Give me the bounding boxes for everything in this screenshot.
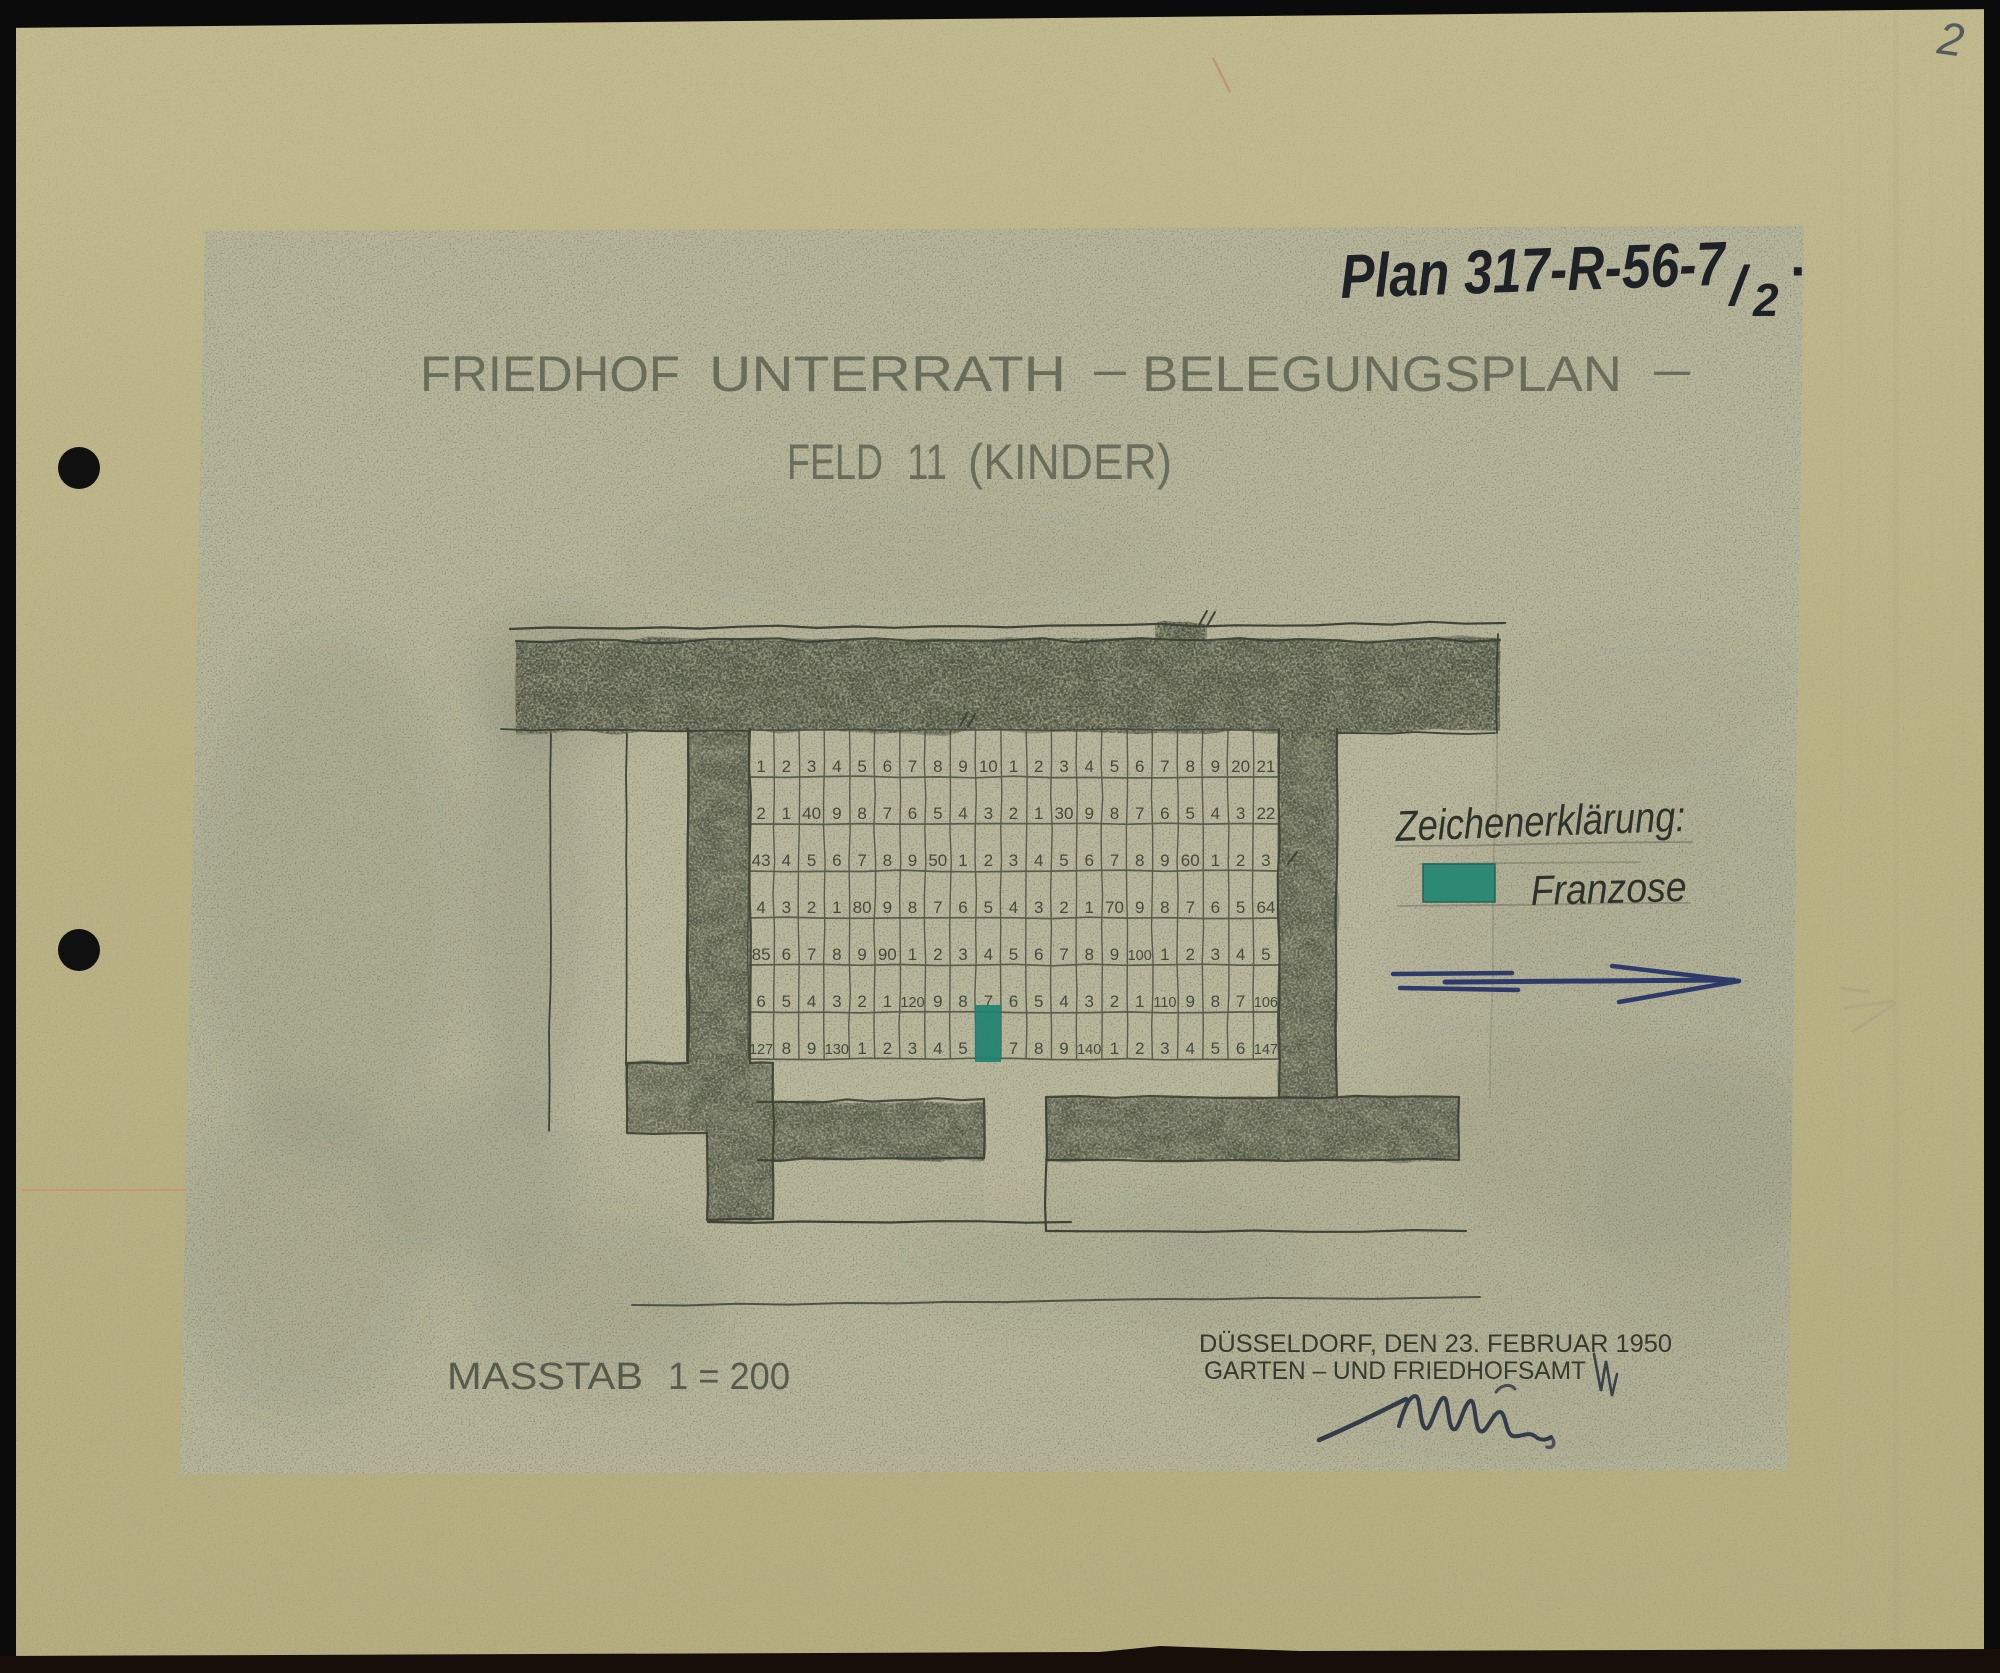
svg-text:1: 1 xyxy=(908,945,917,964)
svg-text:60: 60 xyxy=(1181,851,1200,870)
svg-text:85: 85 xyxy=(752,945,771,964)
svg-text:6: 6 xyxy=(1211,898,1220,917)
svg-text:5: 5 xyxy=(807,851,816,870)
svg-text:7: 7 xyxy=(1185,898,1194,917)
svg-text:6: 6 xyxy=(883,757,892,776)
svg-text:8: 8 xyxy=(1034,1039,1043,1058)
svg-text:4: 4 xyxy=(984,945,993,964)
svg-text:7: 7 xyxy=(908,757,917,776)
svg-text:5: 5 xyxy=(984,898,993,917)
svg-text:3: 3 xyxy=(908,1039,917,1058)
svg-text:FRIEDHOF: FRIEDHOF xyxy=(420,346,680,402)
svg-text:8: 8 xyxy=(782,1039,791,1058)
svg-text:–: – xyxy=(1654,341,1690,397)
svg-text:6: 6 xyxy=(908,804,917,823)
svg-text:130: 130 xyxy=(825,1042,849,1058)
svg-text:22: 22 xyxy=(1256,804,1275,823)
svg-text:8: 8 xyxy=(1211,992,1220,1011)
svg-text:7: 7 xyxy=(883,804,892,823)
svg-text:DÜSSELDORF, DEN 23. FEBRUAR 1: DÜSSELDORF, DEN 23. FEBRUAR 1950 xyxy=(1199,1330,1672,1358)
svg-text:1: 1 xyxy=(1110,1039,1119,1058)
svg-text:2: 2 xyxy=(984,851,993,870)
svg-text:MASSTAB: MASSTAB xyxy=(447,1356,643,1398)
svg-text:7: 7 xyxy=(857,851,866,870)
svg-text:5: 5 xyxy=(1110,757,1119,776)
svg-text:140: 140 xyxy=(1077,1042,1101,1058)
svg-text:4: 4 xyxy=(1009,898,1018,917)
svg-text:120: 120 xyxy=(900,995,924,1011)
svg-text:3: 3 xyxy=(1059,757,1068,776)
svg-text:9: 9 xyxy=(908,851,917,870)
svg-text:5: 5 xyxy=(958,1039,967,1058)
svg-text:70: 70 xyxy=(1105,898,1124,917)
svg-text:BELEGUNGSPLAN: BELEGUNGSPLAN xyxy=(1142,346,1622,402)
svg-text:20: 20 xyxy=(1231,757,1250,776)
svg-text:3: 3 xyxy=(832,992,841,1011)
svg-text:2: 2 xyxy=(756,804,765,823)
svg-text:6: 6 xyxy=(832,851,841,870)
svg-text:11: 11 xyxy=(907,434,947,490)
svg-text:3: 3 xyxy=(1034,898,1043,917)
svg-text:1: 1 xyxy=(883,992,892,1011)
svg-text:7: 7 xyxy=(1009,1039,1018,1058)
svg-text:8: 8 xyxy=(933,757,942,776)
svg-text:4: 4 xyxy=(958,804,967,823)
svg-text:2: 2 xyxy=(782,757,791,776)
svg-text:4: 4 xyxy=(807,992,816,1011)
svg-text:6: 6 xyxy=(1009,992,1018,1011)
svg-text:8: 8 xyxy=(908,898,917,917)
svg-text:7: 7 xyxy=(807,945,816,964)
svg-text:7: 7 xyxy=(933,898,942,917)
svg-text:2: 2 xyxy=(1185,945,1194,964)
svg-text:7: 7 xyxy=(1059,945,1068,964)
svg-text:2: 2 xyxy=(1009,804,1018,823)
svg-text:1: 1 xyxy=(1135,992,1144,1011)
svg-text:3: 3 xyxy=(1009,851,1018,870)
svg-text:5: 5 xyxy=(1185,804,1194,823)
svg-text:6: 6 xyxy=(1034,945,1043,964)
svg-text:9: 9 xyxy=(832,804,841,823)
svg-text:80: 80 xyxy=(853,898,872,917)
svg-text:1: 1 xyxy=(958,851,967,870)
svg-text:9: 9 xyxy=(1211,757,1220,776)
svg-text:9: 9 xyxy=(1059,1039,1068,1058)
svg-text:6: 6 xyxy=(1084,851,1093,870)
svg-text:8: 8 xyxy=(1160,898,1169,917)
svg-text:1: 1 xyxy=(1160,945,1169,964)
svg-text:·: · xyxy=(1790,239,1809,302)
svg-text:2: 2 xyxy=(1059,898,1068,917)
svg-text:9: 9 xyxy=(807,1039,816,1058)
svg-text:8: 8 xyxy=(857,804,866,823)
svg-text:7: 7 xyxy=(1160,757,1169,776)
svg-text:8: 8 xyxy=(1185,757,1194,776)
svg-text:1: 1 xyxy=(832,898,841,917)
svg-text:127: 127 xyxy=(749,1042,773,1058)
svg-text:FELD: FELD xyxy=(787,434,883,490)
svg-text:8: 8 xyxy=(1084,945,1093,964)
svg-text:1 = 200: 1 = 200 xyxy=(668,1356,790,1398)
svg-text:2: 2 xyxy=(933,945,942,964)
svg-text:4: 4 xyxy=(1211,804,1220,823)
svg-text:2: 2 xyxy=(1752,274,1779,326)
svg-text:8: 8 xyxy=(958,992,967,1011)
svg-text:UNTERRATH: UNTERRATH xyxy=(709,346,1066,402)
svg-text:Franzose: Franzose xyxy=(1530,863,1687,914)
svg-text:90: 90 xyxy=(878,945,897,964)
svg-text:8: 8 xyxy=(1110,804,1119,823)
svg-text:8: 8 xyxy=(1135,851,1144,870)
svg-text:9: 9 xyxy=(883,898,892,917)
svg-text:30: 30 xyxy=(1055,804,1074,823)
svg-text:3: 3 xyxy=(984,804,993,823)
svg-text:147: 147 xyxy=(1254,1042,1278,1058)
svg-text:6: 6 xyxy=(1236,1039,1245,1058)
svg-text:5: 5 xyxy=(1034,992,1043,1011)
svg-text:9: 9 xyxy=(1185,992,1194,1011)
svg-text:1: 1 xyxy=(1084,898,1093,917)
svg-text:10: 10 xyxy=(979,757,998,776)
svg-text:1: 1 xyxy=(1034,804,1043,823)
svg-text:3: 3 xyxy=(1084,992,1093,1011)
svg-text:2: 2 xyxy=(1236,851,1245,870)
svg-text:Zeichenerklärung:: Zeichenerklärung: xyxy=(1394,793,1686,851)
svg-text:9: 9 xyxy=(958,757,967,776)
svg-text:3: 3 xyxy=(1236,804,1245,823)
svg-text:(KINDER): (KINDER) xyxy=(968,434,1172,490)
svg-text:50: 50 xyxy=(928,851,947,870)
svg-text:9: 9 xyxy=(933,992,942,1011)
svg-text:5: 5 xyxy=(857,757,866,776)
svg-text:4: 4 xyxy=(1236,945,1245,964)
svg-text:6: 6 xyxy=(756,992,765,1011)
svg-text:5: 5 xyxy=(1236,898,1245,917)
svg-text:9: 9 xyxy=(1135,898,1144,917)
svg-text:3: 3 xyxy=(958,945,967,964)
svg-text:106: 106 xyxy=(1254,995,1278,1011)
svg-text:4: 4 xyxy=(1059,992,1068,1011)
svg-text:2: 2 xyxy=(883,1039,892,1058)
svg-text:5: 5 xyxy=(1009,945,1018,964)
svg-text:2: 2 xyxy=(1135,1039,1144,1058)
svg-text:5: 5 xyxy=(1261,945,1270,964)
svg-text:110: 110 xyxy=(1153,995,1176,1011)
svg-text:3: 3 xyxy=(1160,1039,1169,1058)
svg-text:4: 4 xyxy=(782,851,791,870)
svg-text:1: 1 xyxy=(782,804,791,823)
svg-text:9: 9 xyxy=(1110,945,1119,964)
svg-text:4: 4 xyxy=(1185,1039,1194,1058)
svg-text:9: 9 xyxy=(1084,804,1093,823)
svg-text:4: 4 xyxy=(832,757,841,776)
svg-text:5: 5 xyxy=(782,992,791,1011)
svg-text:1: 1 xyxy=(857,1039,866,1058)
svg-text:21: 21 xyxy=(1256,757,1275,776)
svg-text:3: 3 xyxy=(807,757,816,776)
svg-text:64: 64 xyxy=(1256,898,1275,917)
svg-text:40: 40 xyxy=(802,804,821,823)
svg-text:4: 4 xyxy=(1084,757,1093,776)
svg-text:4: 4 xyxy=(756,898,765,917)
svg-text:6: 6 xyxy=(782,945,791,964)
svg-text:6: 6 xyxy=(1135,757,1144,776)
svg-text:6: 6 xyxy=(958,898,967,917)
svg-text:9: 9 xyxy=(857,945,866,964)
svg-text:Plan 317-R-56-7: Plan 317-R-56-7 xyxy=(1339,230,1728,312)
svg-text:3: 3 xyxy=(782,898,791,917)
svg-text:9: 9 xyxy=(1160,851,1169,870)
svg-text:8: 8 xyxy=(832,945,841,964)
svg-text:GARTEN – UND FRIEDHOFSAMT: GARTEN – UND FRIEDHOFSAMT xyxy=(1204,1357,1586,1385)
svg-text:1: 1 xyxy=(1211,851,1220,870)
svg-text:7: 7 xyxy=(1236,992,1245,1011)
svg-text:6: 6 xyxy=(1160,804,1169,823)
svg-text:2: 2 xyxy=(1110,992,1119,1011)
svg-text:5: 5 xyxy=(1059,851,1068,870)
svg-text:1: 1 xyxy=(756,757,765,776)
svg-text:–: – xyxy=(1094,341,1126,397)
svg-text:3: 3 xyxy=(1261,851,1270,870)
svg-text:100: 100 xyxy=(1128,948,1152,964)
svg-text:2: 2 xyxy=(1034,757,1043,776)
svg-text:3: 3 xyxy=(1211,945,1220,964)
svg-text:8: 8 xyxy=(883,851,892,870)
svg-text:7: 7 xyxy=(1110,851,1119,870)
svg-text:4: 4 xyxy=(1034,851,1043,870)
svg-text:1: 1 xyxy=(1009,757,1018,776)
svg-text:2: 2 xyxy=(807,898,816,917)
svg-text:4: 4 xyxy=(933,1039,942,1058)
svg-text:43: 43 xyxy=(752,851,771,870)
svg-text:7: 7 xyxy=(1135,804,1144,823)
svg-text:5: 5 xyxy=(1211,1039,1220,1058)
svg-text:5: 5 xyxy=(933,804,942,823)
svg-text:2: 2 xyxy=(857,992,866,1011)
